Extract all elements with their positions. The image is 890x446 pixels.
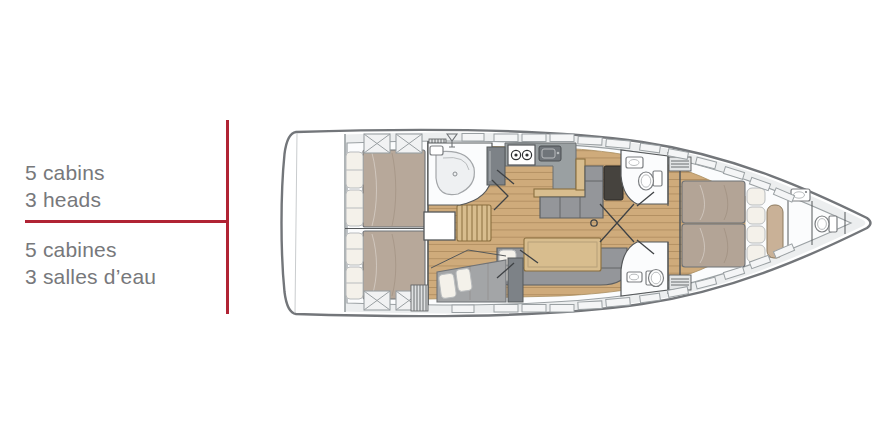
sink-icon (430, 146, 443, 155)
bed-pillows (747, 226, 765, 243)
salon-table-dark (604, 166, 623, 200)
aft-cabin-port (346, 150, 425, 227)
page: 5 cabins 3 heads 5 cabines 3 salles d’ea… (0, 0, 890, 446)
settee-wood-trim (576, 159, 585, 190)
forward-head-port (621, 150, 668, 204)
aft-head (428, 134, 492, 205)
engine-hatch (424, 212, 455, 240)
sink-icon (627, 272, 642, 282)
bed-pillows (747, 188, 765, 205)
hatch-icon (396, 134, 422, 153)
bed-mattress (682, 224, 745, 267)
hatch-icon (364, 134, 390, 153)
toilet-icon (646, 270, 664, 287)
sink-icon (626, 157, 643, 168)
galley-sink-icon (539, 146, 561, 161)
bed-pillows (747, 207, 765, 224)
berth-pillows (438, 273, 456, 299)
companionway-stairs (457, 205, 491, 241)
mid-cabin-wardrobe (508, 258, 523, 302)
yacht-floorplan (0, 0, 890, 446)
hatch-icon (364, 291, 390, 310)
berth-pillows (456, 268, 473, 292)
forward-head-starboard (621, 242, 668, 296)
salon-table-wood (524, 238, 601, 271)
stove-icon (508, 145, 535, 165)
toilet-icon (815, 216, 837, 232)
bed-mattress (682, 181, 745, 223)
